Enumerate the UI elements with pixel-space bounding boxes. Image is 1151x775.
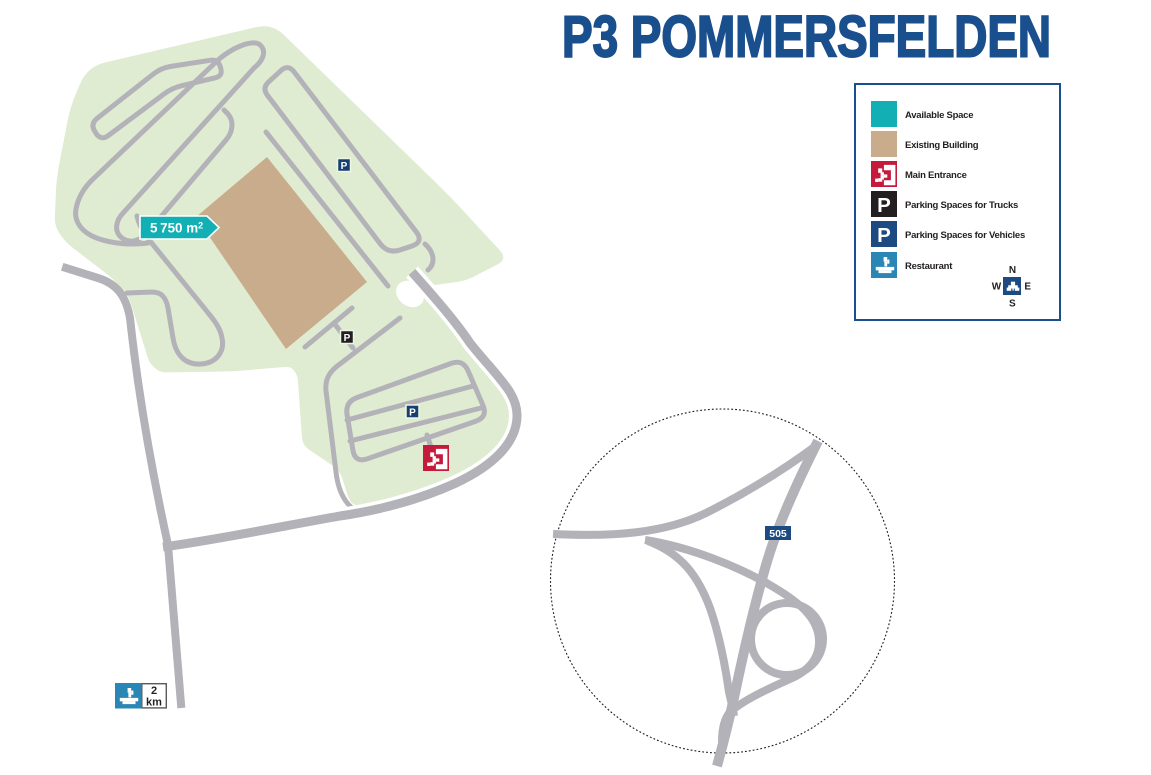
svg-text:Available Space: Available Space — [905, 110, 973, 121]
svg-text:P: P — [344, 333, 351, 344]
svg-text:P: P — [409, 408, 416, 419]
svg-text:Main Entrance: Main Entrance — [905, 170, 967, 181]
svg-text:S: S — [1009, 299, 1016, 310]
svg-text:P3 POMMERSFELDEN: P3 POMMERSFELDEN — [562, 5, 1051, 70]
svg-text:E: E — [1024, 282, 1031, 293]
svg-text:5 750 m2: 5 750 m2 — [150, 221, 203, 236]
svg-text:Parking Spaces for Trucks: Parking Spaces for Trucks — [905, 200, 1018, 211]
svg-text:P: P — [877, 224, 891, 247]
svg-text:W: W — [992, 282, 1002, 293]
svg-text:Restaurant: Restaurant — [905, 261, 953, 272]
svg-text:km: km — [146, 697, 162, 709]
svg-text:P: P — [341, 161, 348, 172]
svg-text:2: 2 — [151, 685, 157, 697]
svg-text:Parking Spaces for Vehicles: Parking Spaces for Vehicles — [905, 230, 1025, 241]
svg-text:505: 505 — [769, 528, 787, 540]
svg-text:N: N — [1009, 265, 1016, 276]
svg-text:Existing Building: Existing Building — [905, 140, 979, 151]
svg-text:P: P — [877, 194, 891, 217]
